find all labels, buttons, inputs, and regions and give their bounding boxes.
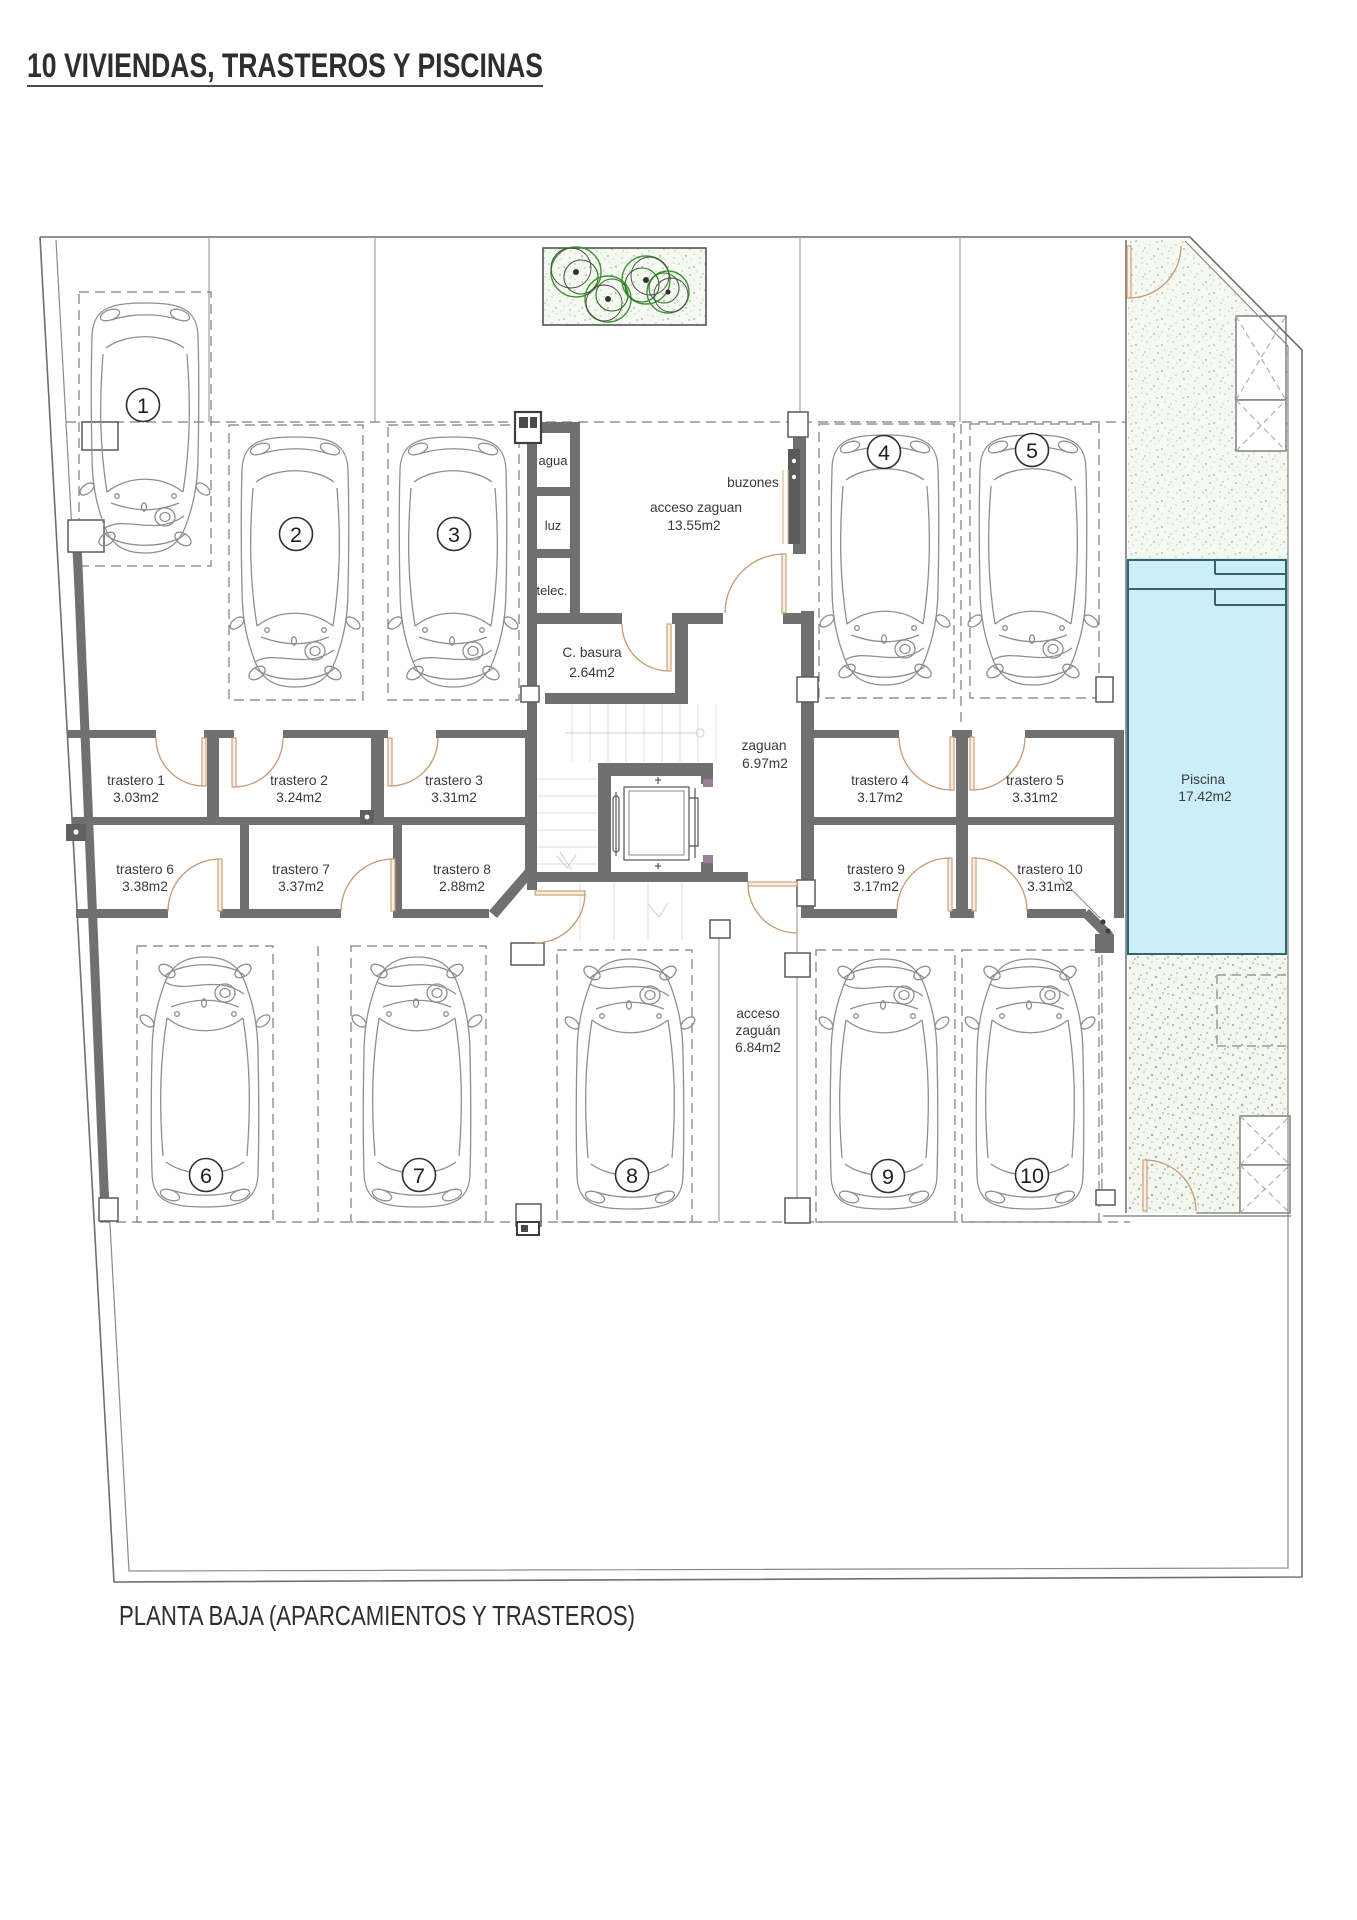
svg-text:6.97m2: 6.97m2 (742, 756, 788, 771)
svg-text:trastero 2: trastero 2 (270, 773, 328, 788)
svg-text:3.37m2: 3.37m2 (278, 879, 324, 894)
svg-text:PLANTA BAJA (APARCAMIENTOS Y T: PLANTA BAJA (APARCAMIENTOS Y TRASTEROS) (119, 1600, 635, 1631)
svg-text:2.64m2: 2.64m2 (569, 665, 615, 680)
svg-text:5: 5 (1026, 439, 1038, 463)
svg-text:3.31m2: 3.31m2 (1027, 879, 1073, 894)
svg-text:telec.: telec. (536, 583, 567, 598)
svg-text:zaguan: zaguan (742, 738, 787, 753)
svg-text:acceso: acceso (736, 1006, 780, 1021)
svg-text:trastero 10: trastero 10 (1017, 862, 1083, 877)
svg-text:trastero 4: trastero 4 (851, 773, 909, 788)
svg-text:3.31m2: 3.31m2 (431, 790, 477, 805)
svg-text:13.55m2: 13.55m2 (667, 518, 720, 533)
svg-text:10: 10 (1020, 1164, 1044, 1188)
svg-text:trastero 3: trastero 3 (425, 773, 483, 788)
svg-text:buzones: buzones (727, 475, 779, 490)
svg-text:1: 1 (137, 394, 149, 418)
svg-text:3.24m2: 3.24m2 (276, 790, 322, 805)
svg-text:10 VIVIENDAS, TRASTEROS Y PISC: 10 VIVIENDAS, TRASTEROS Y PISCINAS (27, 47, 543, 85)
svg-text:8: 8 (626, 1164, 638, 1188)
svg-text:6.84m2: 6.84m2 (735, 1040, 781, 1055)
svg-text:3: 3 (448, 523, 460, 547)
svg-text:17.42m2: 17.42m2 (1178, 789, 1231, 804)
svg-text:trastero 8: trastero 8 (433, 862, 491, 877)
svg-text:9: 9 (882, 1165, 894, 1189)
svg-text:trastero 5: trastero 5 (1006, 773, 1064, 788)
svg-text:3.17m2: 3.17m2 (857, 790, 903, 805)
svg-text:7: 7 (413, 1164, 425, 1188)
svg-text:Piscina: Piscina (1181, 772, 1226, 787)
svg-text:agua: agua (539, 453, 569, 468)
svg-text:6: 6 (200, 1164, 212, 1188)
svg-text:trastero 9: trastero 9 (847, 862, 905, 877)
svg-text:3.31m2: 3.31m2 (1012, 790, 1058, 805)
svg-text:zaguán: zaguán (736, 1023, 781, 1038)
svg-text:acceso zaguan: acceso zaguan (650, 500, 742, 515)
svg-text:trastero 6: trastero 6 (116, 862, 174, 877)
svg-text:trastero 1: trastero 1 (107, 773, 165, 788)
svg-text:2.88m2: 2.88m2 (439, 879, 485, 894)
svg-text:3.38m2: 3.38m2 (122, 879, 168, 894)
svg-text:luz: luz (545, 518, 562, 533)
svg-text:3.17m2: 3.17m2 (853, 879, 899, 894)
svg-text:3.03m2: 3.03m2 (113, 790, 159, 805)
svg-text:2: 2 (290, 523, 302, 547)
svg-text:4: 4 (878, 441, 890, 465)
svg-text:trastero 7: trastero 7 (272, 862, 330, 877)
svg-text:C. basura: C. basura (562, 645, 622, 660)
